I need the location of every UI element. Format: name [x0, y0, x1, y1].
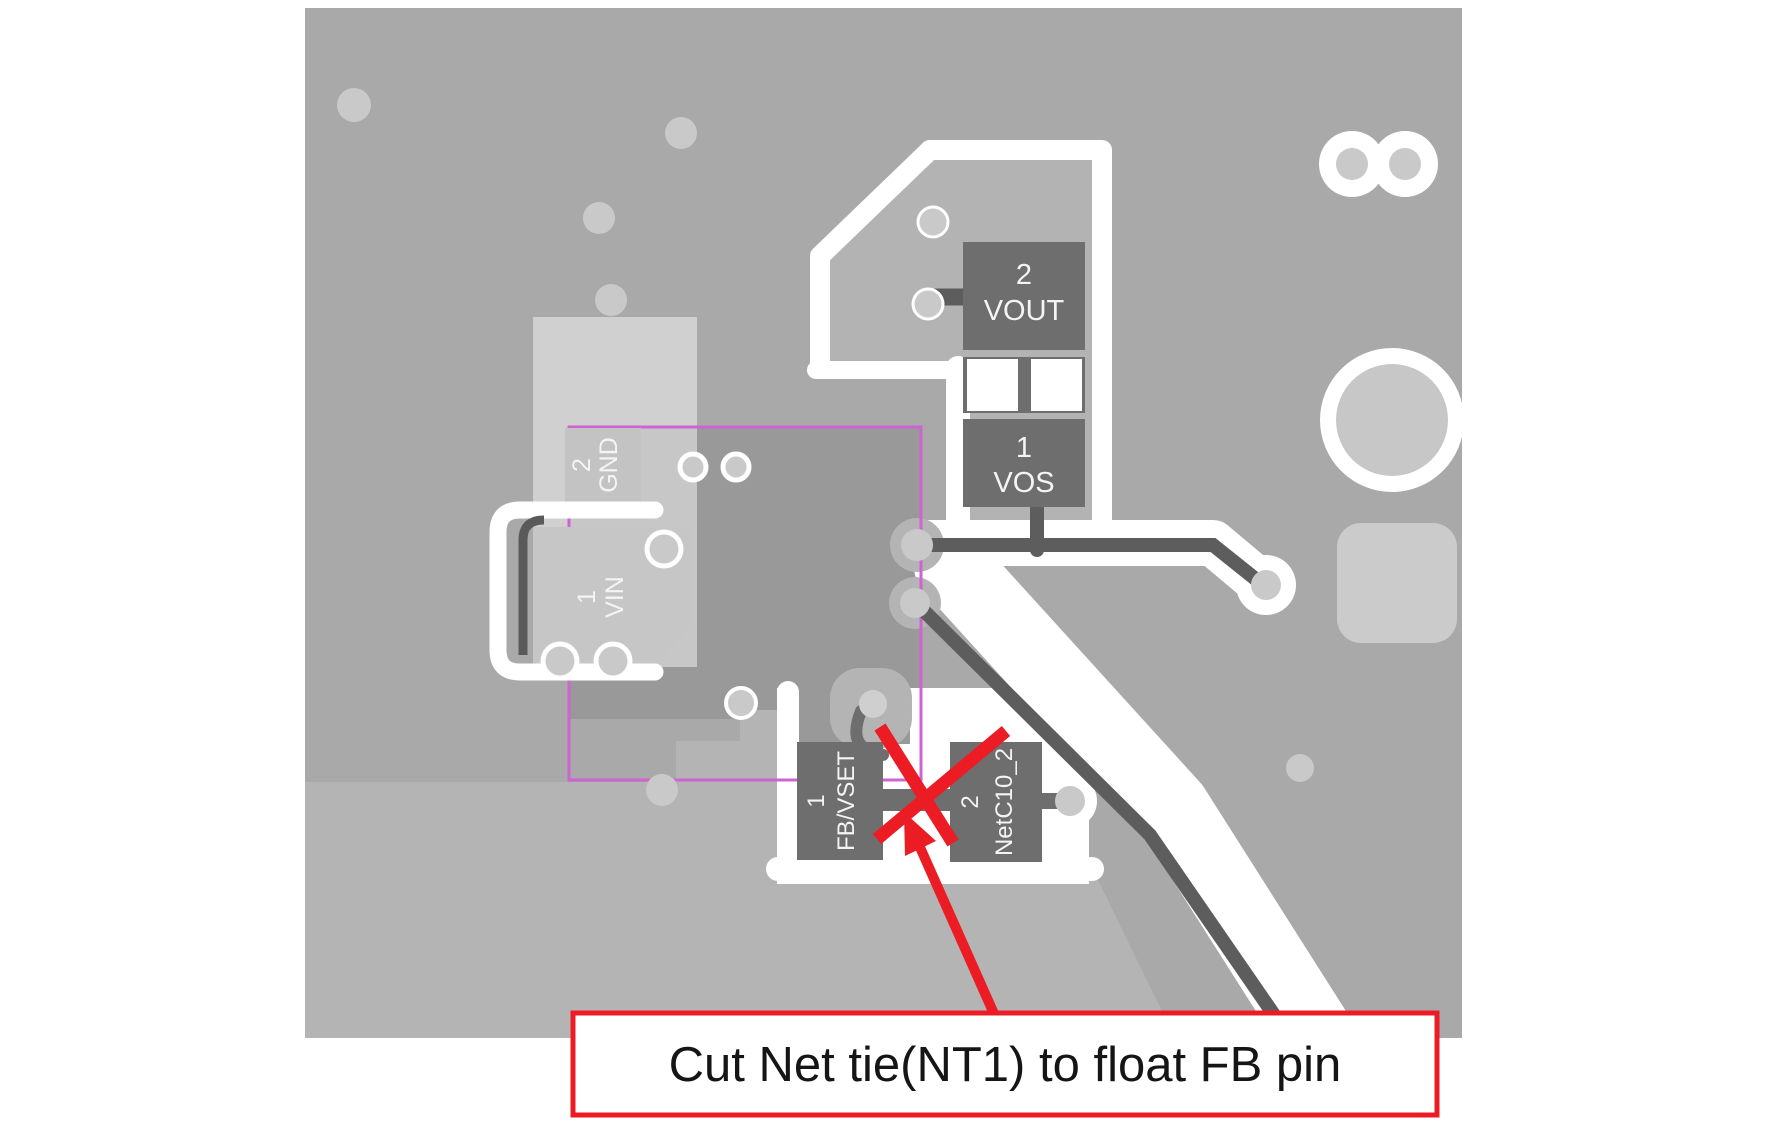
via — [1055, 786, 1085, 816]
via — [913, 289, 943, 319]
paste-window — [1031, 359, 1082, 411]
pcb-board — [305, 8, 1462, 1038]
paste-window — [967, 359, 1018, 411]
via — [901, 529, 933, 561]
callout-note-text: Cut Net tie(NT1) to float FB pin — [669, 1038, 1342, 1092]
pad-label-fb-pin: 1 — [803, 794, 830, 807]
via — [646, 774, 678, 806]
via — [723, 454, 749, 480]
pad-label-vin-pin: 1 — [573, 590, 601, 604]
via — [543, 644, 577, 678]
pcb-layout-screenshot: 2 VOUT 1 VOS 2 GND 1 VIN 1 FB/VSET 2 Net… — [0, 0, 1770, 1140]
via — [337, 88, 371, 122]
via — [680, 454, 706, 480]
pad-label-vos-pin: 1 — [1016, 432, 1032, 464]
keepout-square — [1337, 523, 1457, 643]
pad-label-vin-net: VIN — [601, 576, 629, 618]
drill-hole — [1389, 148, 1421, 180]
via — [1251, 570, 1281, 600]
pad-label-vos-net: VOS — [993, 467, 1054, 499]
via — [726, 688, 756, 718]
via — [647, 532, 681, 566]
via — [665, 117, 697, 149]
pad-label-netc10-net: NetC10_2 — [991, 748, 1018, 856]
pad-label-fb-net: FB/VSET — [833, 751, 860, 851]
via-net-tie — [859, 690, 887, 718]
via — [583, 202, 615, 234]
pad-label-netc10-pin: 2 — [957, 795, 984, 808]
via — [595, 284, 627, 316]
pcb-canvas: 2 VOUT 1 VOS 2 GND 1 VIN 1 FB/VSET 2 Net… — [0, 0, 1770, 1140]
via — [918, 207, 948, 237]
pad-label-gnd-pin: 2 — [568, 458, 596, 472]
drill-hole — [1336, 148, 1368, 180]
mounting-hole — [1336, 364, 1448, 476]
pad-label-vout-pin: 2 — [1016, 259, 1032, 291]
pad-label-gnd-net: GND — [595, 437, 623, 493]
pad-label-vout-net: VOUT — [984, 295, 1065, 327]
via — [900, 588, 930, 618]
via — [1286, 754, 1314, 782]
via — [596, 644, 630, 678]
mask-free-zone-left — [305, 741, 778, 1038]
